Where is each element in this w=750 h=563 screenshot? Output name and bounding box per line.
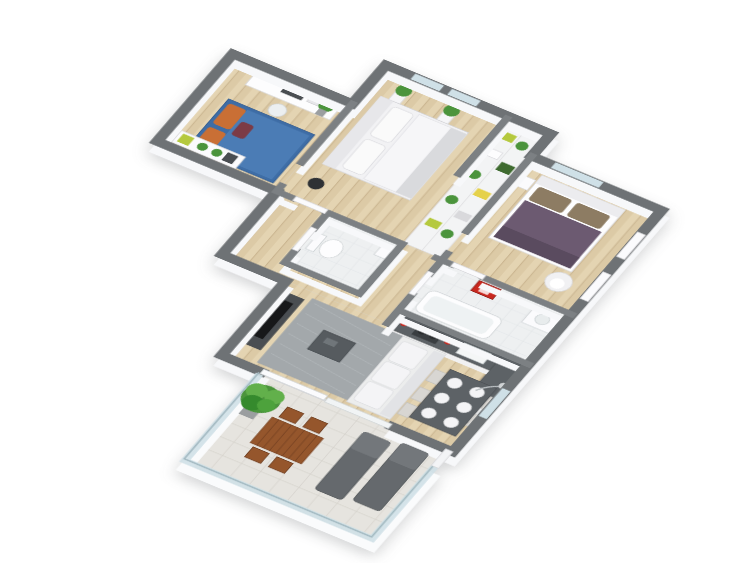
- apartment-plan-svg: [0, 0, 708, 558]
- floor-plan-canvas: [0, 0, 750, 563]
- isometric-plan: [0, 0, 708, 558]
